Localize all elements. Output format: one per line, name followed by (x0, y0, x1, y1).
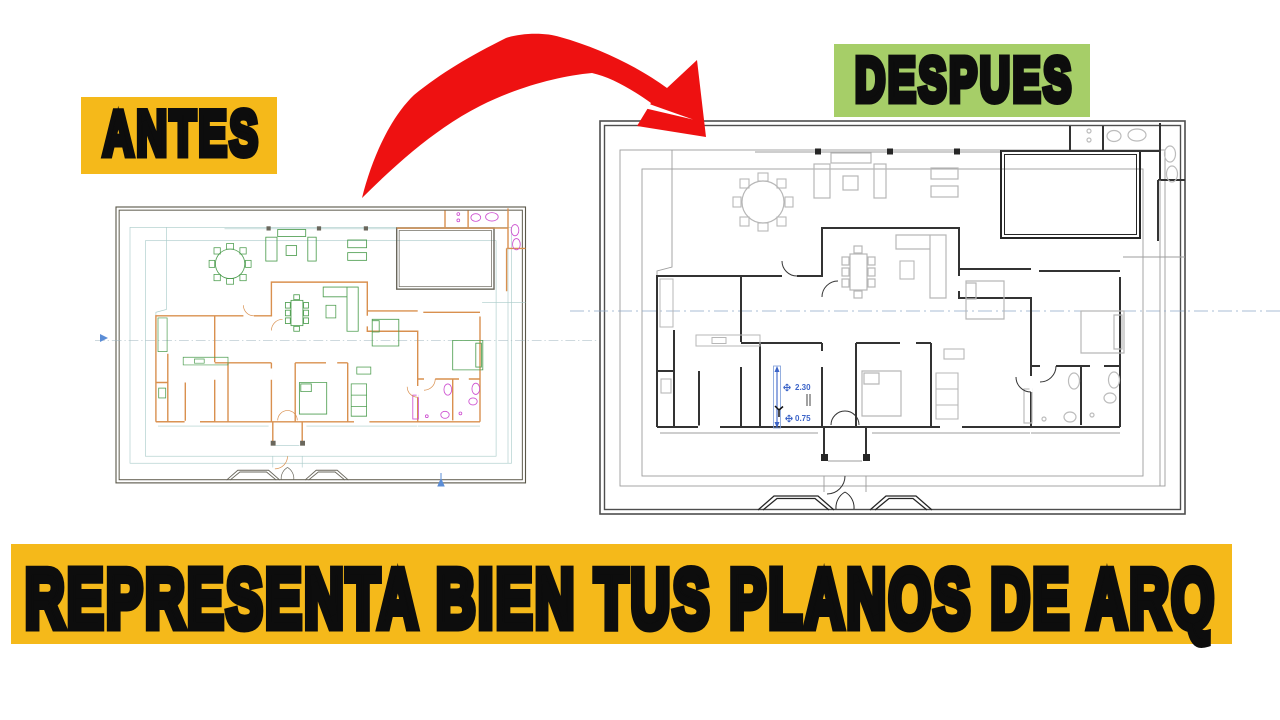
svg-text:2.30: 2.30 (795, 383, 811, 392)
svg-text:0.75: 0.75 (795, 414, 811, 423)
